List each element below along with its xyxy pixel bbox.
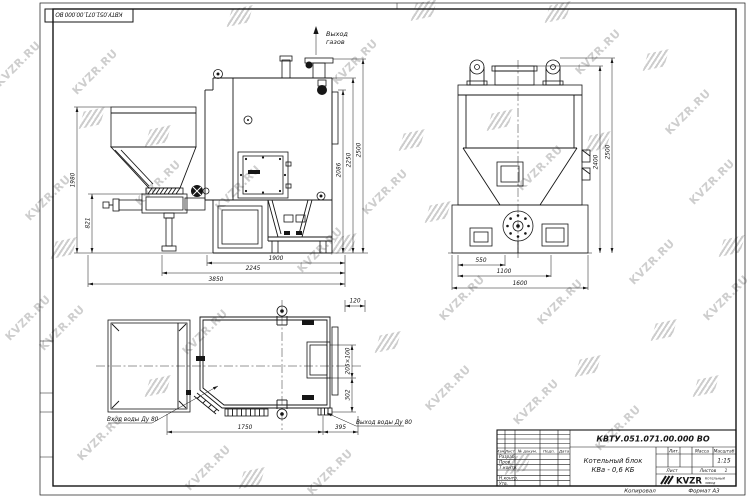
drawing-shape — [103, 202, 109, 208]
dim-arrow — [362, 248, 365, 253]
dimension-label: 550 — [475, 258, 486, 264]
dim-arrow — [88, 283, 93, 286]
drawing-shape — [186, 390, 191, 395]
dim-arrow — [318, 431, 323, 434]
dimension-label: 1900 — [269, 256, 284, 262]
scale-header: Масштаб — [714, 448, 735, 454]
dim-arrow — [76, 107, 79, 112]
drawing-shape — [208, 405, 211, 408]
dimension-label: 2245 — [246, 266, 261, 272]
drawing-shape — [112, 324, 119, 331]
drawing-shape — [248, 170, 260, 174]
drawing-shape — [501, 166, 519, 182]
boiler-top-inner — [203, 320, 327, 405]
dim-arrow — [458, 275, 463, 278]
dimension-label: 2500 — [606, 144, 612, 159]
drawing-shape — [179, 324, 186, 331]
drawing-shape — [582, 168, 590, 180]
dim-arrow — [351, 407, 354, 412]
dimension-label: 3850 — [209, 277, 224, 283]
drawing-shape — [245, 158, 247, 160]
dimension-label: 1600 — [513, 281, 528, 287]
dim-arrow — [323, 431, 328, 434]
drawing-shape — [320, 195, 323, 198]
drawing-shape — [296, 231, 302, 235]
drawing-shape — [582, 150, 590, 156]
drawing-shape — [262, 156, 264, 158]
drawing-shape — [582, 150, 590, 162]
dimension-label: 2250 — [347, 152, 353, 167]
dimension-label: 821 — [86, 217, 92, 228]
mass-header: Масса — [695, 448, 709, 454]
drawing-shape — [160, 188, 164, 194]
lit-header: Лит. — [668, 448, 679, 454]
drawing-shape — [247, 119, 249, 121]
drawing-shape — [203, 188, 209, 194]
drawing-shape — [299, 200, 308, 234]
signature-row-label: Н.контр. — [499, 476, 518, 482]
drawing-shape — [272, 241, 278, 253]
boiler-top-outline — [200, 317, 330, 408]
drawing-shape — [332, 92, 338, 144]
drawing-shape — [302, 395, 314, 400]
drawing-shape — [282, 60, 290, 78]
drawing-shape — [279, 190, 281, 192]
change-col-header: № докум. — [517, 448, 537, 453]
drawing-shape — [156, 188, 160, 194]
drawing-shape — [203, 400, 206, 403]
kvzr-logo-text: KVZR — [676, 477, 702, 487]
drawing-shape — [218, 206, 262, 248]
dim-arrow — [599, 248, 602, 253]
dim-arrow — [351, 378, 354, 383]
dim-arrow — [611, 248, 614, 253]
dim-arrow — [458, 264, 463, 267]
dim-arrow — [546, 275, 551, 278]
drawing-shape — [509, 232, 512, 235]
dimension-label: 2500 — [357, 142, 363, 157]
dim-arrow — [340, 283, 345, 286]
drawing-shape — [492, 66, 537, 71]
drawing-shape — [119, 200, 142, 210]
drawing-shape — [222, 210, 258, 244]
logo-caption: Котельный — [705, 477, 726, 481]
format-label: Формат А3 — [688, 489, 720, 495]
dim-arrow — [345, 305, 350, 308]
drawing-shape — [146, 197, 183, 210]
dim-arrow — [340, 272, 345, 275]
drawing-shape — [284, 231, 290, 235]
drawing-shape — [225, 409, 268, 416]
dimension-label: 1750 — [238, 425, 253, 431]
drawing-shape — [176, 188, 180, 194]
drawing-shape — [551, 65, 556, 70]
drawing-shape — [475, 65, 480, 70]
drawing-shape — [317, 85, 327, 95]
drawing-shape — [524, 232, 527, 235]
dimension-label: 205×100 — [346, 347, 352, 374]
drawing-shape — [517, 235, 520, 238]
dim-arrow — [342, 248, 345, 253]
drawing-shape — [172, 188, 176, 194]
drawing-shape — [196, 356, 205, 361]
water-inlet-label: Вход воды Ду 80 — [107, 417, 159, 423]
drawing-shape — [245, 190, 247, 192]
drawing-shape — [279, 158, 281, 160]
drawing-shape — [164, 188, 168, 194]
change-col-header: Подп. — [543, 448, 555, 453]
dim-arrow — [352, 248, 355, 253]
dimension-label: 2086 — [337, 162, 343, 177]
drawing-shape — [272, 200, 281, 234]
change-col-header: Лист — [504, 448, 516, 453]
leader-arrowhead — [213, 386, 218, 390]
drawing-shape — [458, 85, 582, 205]
dim-arrow — [611, 58, 614, 63]
drawing-shape — [164, 213, 174, 218]
drawing-shape — [162, 246, 176, 251]
signature-row-label: Пров. — [499, 460, 512, 466]
copied-label: Копировал — [624, 489, 656, 495]
dimension-label: 120 — [349, 299, 360, 305]
gas-outlet-label: Выход — [326, 30, 348, 38]
dim-arrow — [340, 262, 345, 265]
change-col-header: Дата — [558, 448, 570, 453]
drawing-shape — [284, 215, 293, 222]
drawing-shape — [495, 66, 534, 85]
drawing-shape — [286, 184, 291, 188]
drawing-shape — [280, 412, 284, 416]
dim-arrow — [91, 194, 94, 199]
dim-arrow — [76, 248, 79, 253]
drawing-shape — [516, 224, 520, 228]
gas-arrowhead — [313, 26, 318, 34]
scale-value: 1:15 — [717, 458, 731, 465]
dimension-label: 395 — [335, 425, 346, 431]
drawing-shape — [185, 198, 205, 210]
gas-outlet-label: газов — [326, 38, 345, 46]
sheets-label: Листов — [699, 468, 717, 474]
drawing-shape — [527, 225, 530, 228]
drawing-shape — [166, 218, 172, 246]
drawing-shape — [546, 60, 560, 74]
signature-row-label: Разраб. — [499, 454, 516, 460]
drawing-shape — [284, 174, 286, 176]
signature-row-label: Т.контр. — [499, 465, 518, 471]
drawing-sheet: KVZR.RUKVZR.RUKVZR.RUKVZR.RUKVZR.RUKVZR.… — [0, 0, 750, 500]
dim-arrow — [500, 264, 505, 267]
logo-caption: завод — [705, 481, 716, 485]
drawing-shape — [306, 62, 313, 69]
corner-doc-number: КВТУ.051.071.00.000 ВО — [55, 11, 123, 17]
dim-arrow — [207, 262, 212, 265]
drawing-shape — [506, 225, 509, 228]
drawing-shape — [112, 401, 119, 408]
dim-arrow — [162, 272, 167, 275]
dimension-label: 1980 — [71, 172, 77, 187]
drawing-shape — [121, 150, 153, 184]
drawing-shape — [509, 217, 512, 220]
drawing-shape — [113, 199, 119, 211]
drawing-shape — [214, 409, 217, 412]
drawing-shape — [470, 228, 492, 246]
technical-drawing: КВТУ.051.071.00.000 ВО190022453850198082… — [0, 0, 750, 500]
dimension-label: 1100 — [497, 269, 512, 275]
dim-arrow — [583, 287, 588, 290]
sheets-value: 1 — [725, 468, 728, 474]
drawing-shape — [280, 309, 284, 313]
dim-arrow — [342, 90, 345, 95]
drawing-shape — [148, 188, 152, 194]
water-outlet-label: Выход воды Ду 80 — [356, 420, 412, 426]
drawing-shape — [582, 168, 590, 174]
drawing-shape — [115, 150, 149, 186]
drawing-frame — [53, 9, 736, 486]
sheet-label: Лист — [665, 468, 678, 474]
product-title: Котельный блок — [584, 457, 644, 465]
drawing-shape — [524, 217, 527, 220]
dim-arrow — [362, 59, 365, 64]
drawing-shape — [332, 327, 338, 395]
drawing-shape — [310, 345, 327, 375]
dim-arrow — [352, 78, 355, 83]
drawing-shape — [540, 148, 577, 205]
dim-arrow — [599, 66, 602, 71]
drawing-shape — [313, 63, 325, 78]
drawing-shape — [546, 228, 564, 242]
dim-arrow — [360, 305, 365, 308]
product-title: КВа - 0,6 КБ — [592, 466, 635, 474]
drawing-shape — [152, 188, 156, 194]
drawing-shape — [286, 162, 291, 166]
drawing-shape — [217, 73, 220, 76]
drawing-shape — [517, 214, 520, 217]
drawing-shape — [320, 241, 326, 253]
drawing-shape — [302, 320, 314, 325]
signature-row-label: Утв. — [499, 481, 508, 487]
dim-arrow — [91, 248, 94, 253]
drawing-shape — [470, 60, 484, 74]
drawing-shape — [474, 232, 488, 242]
drawing-shape — [262, 191, 264, 193]
dim-arrow — [353, 431, 358, 434]
drawing-shape — [463, 148, 500, 205]
titleblock-doc-number: КВТУ.051.071.00.000 ВО — [596, 435, 710, 444]
drawing-shape — [240, 174, 242, 176]
dimension-label: 302 — [346, 389, 352, 400]
drawing-shape — [168, 188, 172, 194]
dimension-label: 2400 — [594, 154, 600, 169]
drawing-shape — [243, 156, 283, 194]
dim-arrow — [167, 431, 172, 434]
dim-arrow — [452, 287, 457, 290]
